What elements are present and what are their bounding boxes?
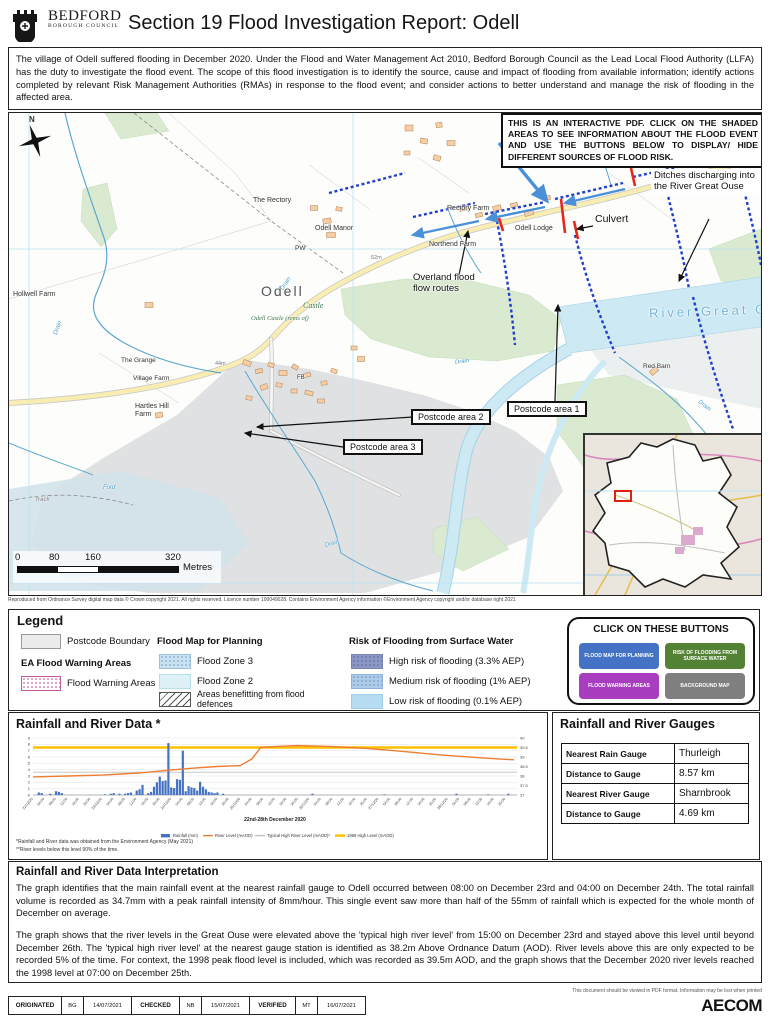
svg-text:38.5: 38.5 [520,764,529,769]
defences-swatch [159,692,191,707]
gauge-label: Distance to Gauge [562,764,675,784]
svg-text:5: 5 [28,761,31,766]
spot-height-label: 52m [371,255,382,261]
flood-zone3-swatch [159,654,191,669]
svg-text:40: 40 [520,735,525,740]
gauge-label: Nearest River Gauge [562,784,675,804]
svg-text:1998 High Level (mAOD): 1998 High Level (mAOD) [347,833,394,838]
approval-checked-lab: CHECKED [132,996,180,1015]
legend-zone2-label: Flood Zone 2 [197,676,253,687]
rainfall-river-chart: 01234567893737.53838.53939.54022/12/2004… [11,733,545,845]
gauge-row: Nearest Rain GaugeThurleigh [562,744,749,764]
chart-panel-title: Rainfall and River Data * [16,717,161,731]
svg-text:39.5: 39.5 [520,745,529,750]
svg-text:0: 0 [28,792,31,797]
locator-inset-map [583,433,761,595]
svg-text:16:00: 16:00 [209,797,218,806]
svg-text:12:00: 12:00 [198,797,207,806]
place-label-rectory-farm: Rectory Farm [447,205,489,212]
gauge-row: Distance to Gauge8.57 km [562,764,749,784]
track-label: Track [35,496,50,503]
svg-text:39: 39 [520,754,525,759]
legend-button-flood-map-for-planning[interactable]: FLOOD MAP FOR PLANNING [579,643,659,669]
aecom-logo: AECOM [701,996,762,1016]
scale-tick: 160 [85,552,101,563]
scale-unit: Metres [183,562,212,573]
interpretation-para-1: The graph identifies that the main rainf… [16,882,754,920]
chart-footnotes: *Rainfall and River data was obtained fr… [16,839,193,854]
legend-medium-label: Medium risk of flooding (1% AEP) [389,676,531,687]
svg-text:37: 37 [520,792,525,797]
approval-originated-lab: ORIGINATED [8,996,62,1015]
place-label-fb: FB [297,375,305,381]
page-title: Section 19 Flood Investigation Report: O… [128,12,519,35]
rainfall-river-data-panel: Rainfall and River Data * 01234567893737… [8,712,548,860]
scale-tick: 0 [15,552,20,563]
svg-text:16:00: 16:00 [140,797,149,806]
svg-text:16:00: 16:00 [417,797,426,806]
svg-text:River Level (mAOD): River Level (mAOD) [215,833,253,838]
chart-footnote-2: **River levels below this level 90% of t… [16,847,193,855]
svg-text:08:00: 08:00 [463,797,472,806]
scale-bar-graphic [17,566,179,573]
legend-low-label: Low risk of flooding (0.1% AEP) [389,696,522,707]
svg-text:20:00: 20:00 [359,797,368,806]
svg-text:24/12/20: 24/12/20 [160,797,172,810]
approval-verified-lab: VERIFIED [250,996,296,1015]
scale-tick: 80 [49,552,60,563]
gauges-panel: Rainfall and River Gauges Nearest Rain G… [552,712,760,860]
medium-risk-swatch [351,674,383,689]
svg-text:04:00: 04:00 [175,797,184,806]
place-label-odell-manor: Odell Manor [315,225,353,232]
approval-originated-ini: BG [62,996,84,1015]
flood-warning-swatch [21,676,61,691]
approval-checked-ini: NB [180,996,202,1015]
approval-bar: ORIGINATEDBG14/07/2021CHECKEDNB15/07/202… [8,996,762,1015]
svg-text:08:00: 08:00 [48,797,57,806]
map-attribution: Reproduced from Ordnance Survey digital … [8,597,760,603]
legend-ea-heading: EA Flood Warning Areas [21,658,131,669]
svg-text:20:00: 20:00 [152,797,161,806]
council-name-main: BEDFORD [48,9,122,24]
svg-text:20:00: 20:00 [83,797,92,806]
svg-text:37.5: 37.5 [520,783,529,788]
high-risk-swatch [351,654,383,669]
approval-originated-dat: 14/07/2021 [84,996,132,1015]
svg-text:08:00: 08:00 [255,797,264,806]
scale-bar: 0 80 160 320 Metres [13,551,221,583]
svg-text:12:00: 12:00 [129,797,138,806]
scale-tick: 320 [165,552,181,563]
svg-text:08:00: 08:00 [394,797,403,806]
print-note: This document should be viewed in PDF fo… [572,988,762,994]
overland-flow-annotation: Overland flood flow routes [413,273,493,295]
svg-text:12:00: 12:00 [474,797,483,806]
gauge-value: Thurleigh [675,744,749,764]
svg-text:04:00: 04:00 [451,797,460,806]
place-label-odell-castle: Odell Castle (rems of) [251,315,309,322]
intro-paragraph: The village of Odell suffered flooding i… [8,47,762,110]
svg-text:22nd-28th December 2020: 22nd-28th December 2020 [244,817,306,823]
gauge-row: Nearest River GaugeSharnbrook [562,784,749,804]
svg-text:28/12/20: 28/12/20 [437,797,449,810]
svg-text:22/12/20: 22/12/20 [22,797,34,810]
svg-text:16:00: 16:00 [71,797,80,806]
svg-text:8: 8 [28,742,31,747]
svg-text:04:00: 04:00 [313,797,322,806]
legend-title: Legend [17,613,63,628]
svg-text:1: 1 [28,786,31,791]
svg-text:04:00: 04:00 [106,797,115,806]
legend-defences-label: Areas benefitting from flood defences [197,690,327,709]
ford-label: Ford [103,485,115,491]
legend-zone3-label: Flood Zone 3 [197,656,253,667]
postcode-area-2-callout[interactable]: Postcode area 2 [411,409,491,425]
inset-map-svg [585,435,761,595]
culvert-annotation: Culvert [595,213,628,225]
svg-text:12:00: 12:00 [59,797,68,806]
approval-verified-dat: 16/07/2021 [318,996,366,1015]
council-logo-icon [8,6,42,42]
svg-text:04:00: 04:00 [382,797,391,806]
legend-surface-heading: Risk of Flooding from Surface Water [349,636,513,647]
place-label-pw: PW [295,245,305,252]
svg-text:16:00: 16:00 [486,797,495,806]
legend-button-risk-of-flooding-from-surface-water[interactable]: RISK OF FLOODING FROM SURFACE WATER [665,643,745,669]
approval-checked-dat: 15/07/2021 [202,996,250,1015]
svg-text:08:00: 08:00 [325,797,334,806]
svg-text:25/12/20: 25/12/20 [229,797,241,810]
place-label-the-rectory: The Rectory [253,197,291,204]
svg-text:08:00: 08:00 [186,797,195,806]
borough-boundary [593,439,739,587]
low-risk-swatch [351,694,383,709]
svg-text:16:00: 16:00 [348,797,357,806]
svg-text:20:00: 20:00 [290,797,299,806]
gauge-value: 4.69 km [675,804,749,824]
interactive-buttons-box: CLICK ON THESE BUTTONS FLOOD MAP FOR PLA… [567,617,755,705]
svg-text:23/12/20: 23/12/20 [91,797,103,810]
svg-text:04:00: 04:00 [244,797,253,806]
gauges-panel-title: Rainfall and River Gauges [560,717,715,731]
report-page: BEDFORD BOROUGH COUNCIL Section 19 Flood… [0,0,770,1024]
svg-text:04:00: 04:00 [36,797,45,806]
svg-text:2: 2 [28,780,31,785]
svg-text:26/12/20: 26/12/20 [298,797,310,810]
gauges-table: Nearest Rain GaugeThurleighDistance to G… [561,743,749,824]
legend-button-background-map[interactable]: BACKGROUND MAP [665,673,745,699]
flood-map: N Odell River Great Ouse Rectory Farm No… [8,112,762,596]
svg-text:16:00: 16:00 [278,797,287,806]
chart-footnote-1: *Rainfall and River data was obtained fr… [16,839,193,847]
svg-text:20:00: 20:00 [428,797,437,806]
flood-zone2-swatch [159,674,191,689]
svg-text:Rainfall (mm): Rainfall (mm) [173,833,198,838]
chart-svg: 01234567893737.53838.53939.54022/12/2004… [11,733,545,845]
legend-panel: Legend Postcode Boundary EA Flood Warnin… [8,609,760,711]
place-label-hartles-hill-farm: Hartles Hill Farm [135,403,179,418]
place-label-hollwell-farm: Hollwell Farm [13,291,55,298]
svg-text:27/12/20: 27/12/20 [367,797,379,810]
postcode-area-3-callout[interactable]: Postcode area 3 [343,439,423,455]
place-label-red-barn: Red Barn [643,363,670,370]
gauge-value: Sharnbrook [675,784,749,804]
legend-high-label: High risk of flooding (3.3% AEP) [389,656,524,667]
spot-height-label: 44m [215,361,226,367]
interpretation-para-2: The graph shows that the river levels in… [16,929,754,980]
gauge-label: Distance to Gauge [562,804,675,824]
legend-postcode-label: Postcode Boundary [67,636,150,647]
svg-text:7: 7 [28,748,31,753]
svg-text:Typical High River Level (mAOD: Typical High River Level (mAOD)* [267,833,330,838]
place-label-village-farm: Village Farm [133,375,169,382]
svg-text:4: 4 [28,767,31,772]
svg-text:3: 3 [28,773,31,778]
approval-verified-ini: MT [296,996,318,1015]
council-name: BEDFORD BOROUGH COUNCIL [48,9,122,30]
svg-text:12:00: 12:00 [405,797,414,806]
ditches-annotation: Ditches discharging into the River Great… [651,169,759,195]
place-label-odell-lodge: Odell Lodge [515,225,553,232]
svg-text:6: 6 [28,754,31,759]
svg-text:12:00: 12:00 [267,797,276,806]
gauge-label: Nearest Rain Gauge [562,744,675,764]
place-label-the-grange: The Grange [121,357,156,364]
interactive-pdf-notice: THIS IS AN INTERACTIVE PDF. CLICK ON THE… [501,113,762,168]
buttons-title: CLICK ON THESE BUTTONS [569,624,753,635]
svg-text:12:00: 12:00 [336,797,345,806]
gauge-value: 8.57 km [675,764,749,784]
legend-button-flood-warning-areas[interactable]: FLOOD WARNING AREAS [579,673,659,699]
interpretation-panel: Rainfall and River Data Interpretation T… [8,861,762,983]
svg-text:38: 38 [520,773,525,778]
legend-flood-warning-label: Flood Warning Areas [67,678,155,689]
place-label-castle: Castle [303,301,323,310]
svg-text:20:00: 20:00 [497,797,506,806]
gauge-row: Distance to Gauge4.69 km [562,804,749,824]
north-label: N [29,115,35,124]
svg-text:20:00: 20:00 [221,797,230,806]
council-name-sub: BOROUGH COUNCIL [48,24,122,30]
place-label-northend-farm: Northend Farm [429,241,476,248]
legend-planning-heading: Flood Map for Planning [157,636,263,647]
postcode-boundary-swatch [21,634,61,649]
svg-text:08:00: 08:00 [117,797,126,806]
header: BEDFORD BOROUGH COUNCIL Section 19 Flood… [8,4,762,44]
postcode-area-1-callout[interactable]: Postcode area 1 [507,401,587,417]
svg-text:9: 9 [28,735,31,740]
interpretation-title: Rainfall and River Data Interpretation [16,866,754,878]
